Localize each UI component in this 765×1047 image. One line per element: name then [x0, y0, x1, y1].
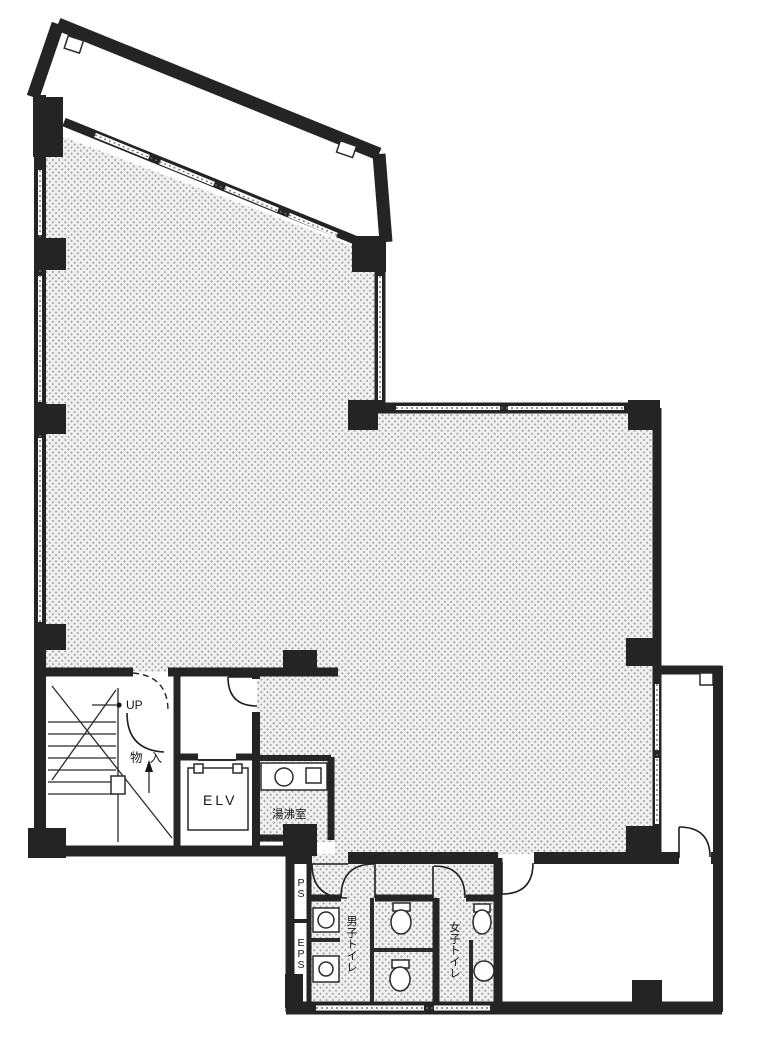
washbasin-icon — [319, 962, 333, 976]
column — [626, 638, 658, 666]
column — [352, 236, 386, 272]
column — [36, 238, 66, 270]
elevator-label: ELV — [203, 792, 237, 808]
balcony-east-wall — [379, 154, 386, 242]
electrical-pipe-shaft-label: EPS — [297, 937, 304, 971]
pipe-shaft-label: PS — [297, 877, 304, 900]
column — [626, 826, 658, 856]
column — [28, 828, 66, 858]
floor-plan-svg: UP 物入 ELV 湯沸室 PS EPS 男子トイレ 女子トイレ — [0, 0, 765, 1047]
column — [36, 624, 66, 650]
kitchenette-label: 湯沸室 — [272, 807, 307, 821]
column — [348, 400, 378, 430]
column — [36, 404, 66, 434]
column — [283, 650, 317, 676]
stove-icon — [306, 768, 321, 783]
washbasin-icon — [318, 912, 334, 928]
stair-landing-marker — [111, 776, 125, 794]
sink-icon — [275, 768, 293, 786]
drain-box — [700, 673, 713, 685]
elevator-hall — [179, 674, 257, 759]
womens-toilet-label: 女子トイレ — [450, 920, 461, 980]
floor-plan-page: UP 物入 ELV 湯沸室 PS EPS 男子トイレ 女子トイレ — [0, 0, 765, 1047]
stairs-up-label: UP — [126, 698, 143, 712]
bottom-right-room — [494, 864, 718, 1006]
column — [285, 974, 303, 1008]
up-leader-dot — [116, 702, 121, 707]
column — [33, 97, 63, 157]
kitchenette-fixtures — [261, 763, 327, 790]
column — [632, 980, 662, 1010]
east-balcony — [660, 670, 720, 860]
washbasin-icon — [474, 961, 494, 981]
column — [628, 400, 660, 430]
toilet-icon — [473, 910, 491, 934]
toilet-icon — [391, 910, 411, 934]
toilet-icon — [390, 967, 410, 991]
elevator-jamb — [194, 764, 203, 773]
mens-toilet-label: 男子トイレ — [347, 916, 358, 974]
column — [283, 824, 317, 856]
closet-label: 物入 — [130, 751, 169, 765]
elevator-jamb — [233, 764, 242, 773]
